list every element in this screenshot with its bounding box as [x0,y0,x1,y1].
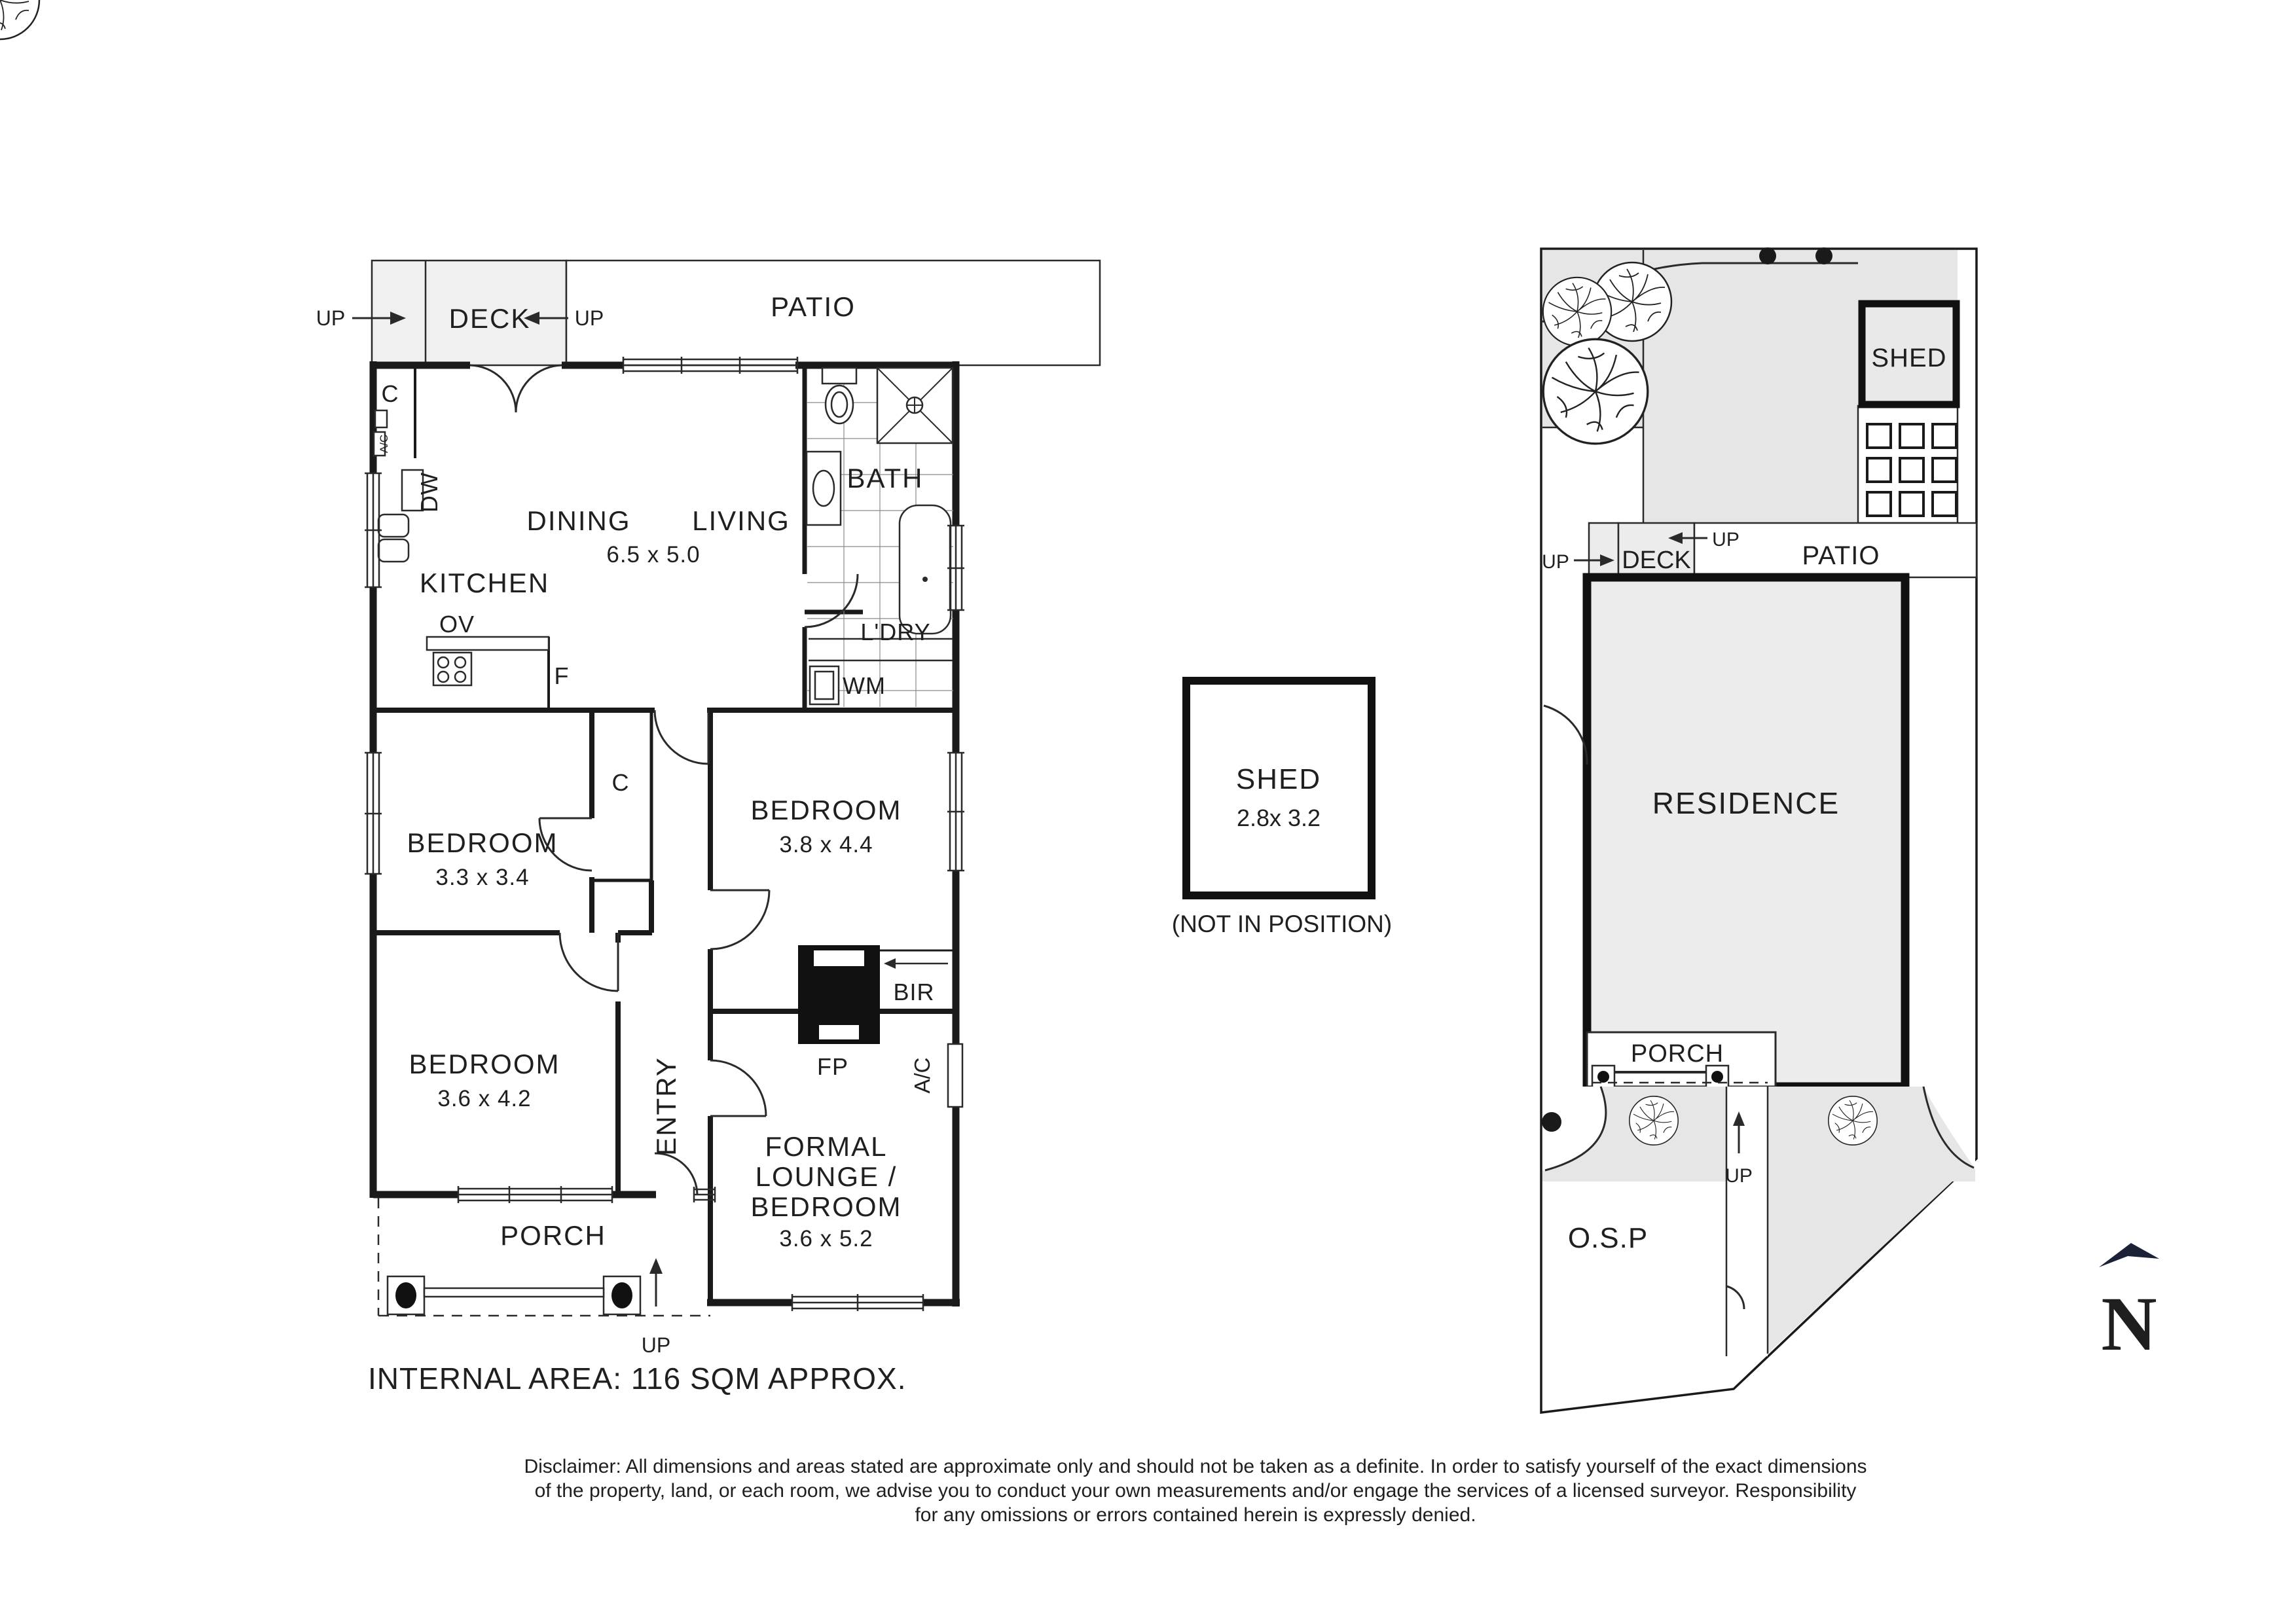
bedroom1-label: BEDROOM [407,827,558,858]
bath-label: BATH [847,463,924,494]
closet-label: C [612,769,630,796]
bush-icon [1759,247,1776,264]
shed-dims: 2.8x 3.2 [1237,804,1321,831]
bedroom3-dims: 3.6 x 4.2 [437,1086,531,1111]
site-porch-label: PORCH [1631,1040,1724,1068]
disclaimer: Disclaimer: All dimensions and areas sta… [524,1456,1867,1526]
bedroom1-dims: 3.3 x 3.4 [435,865,529,890]
bir-arrow [884,958,948,969]
lounge-label-2: LOUNGE / [756,1161,898,1192]
fridge-label: F [555,662,570,689]
site-deck-label: DECK [1622,547,1691,574]
shower [877,368,953,443]
deck-label: DECK [449,303,531,334]
porch-label: PORCH [500,1220,606,1251]
shed-label: SHED [1236,763,1321,795]
bir-label: BIR [893,979,934,1005]
site-up-label-left: UP [1542,551,1569,573]
toilet [822,368,856,424]
disclaimer-line-3: for any omissions or errors contained he… [915,1504,1476,1526]
kitchen-cupboard [375,410,387,427]
bedroom2-dims: 3.8 x 4.4 [779,832,873,857]
porch [378,1198,710,1316]
dining-label: DINING [527,505,631,536]
site-up-label-deck: UP [1712,529,1740,550]
kitchen-sink [378,514,409,562]
wm-label: WM [843,672,886,699]
shed-note: (NOT IN POSITION) [1172,910,1392,937]
kitchen-label: KITCHEN [420,568,549,598]
floor-plan-page: UP DECK UP PATIO C A/C DW DINING LIVING … [0,0,2296,1622]
north-compass: N [2099,1243,2159,1367]
site-up-label-path: UP [1725,1165,1753,1187]
bedroom3-label: BEDROOM [409,1049,560,1079]
shed-detail: SHED 2.8x 3.2 (NOT IN POSITION) [1172,681,1392,937]
site-deck-steps [1589,523,1618,577]
lounge-dims: 3.6 x 5.2 [779,1226,873,1252]
fireplace [798,945,880,1044]
residence-label: RESIDENCE [1652,786,1840,820]
living-dims: 6.5 x 5.0 [606,542,700,568]
site-porch: PORCH [1587,1032,1776,1088]
entry-label: ENTRY [651,1056,682,1156]
ac-label-lounge: A/C [910,1057,934,1093]
internal-area-label: INTERNAL AREA: 116 SQM APPROX. [368,1361,907,1396]
bush-icon [1542,1112,1561,1132]
residence [1587,577,1905,1087]
ac-unit-lounge [948,1044,962,1107]
up-label-deck-left: UP [316,306,345,330]
laundry-label: L'DRY [860,619,930,645]
pavers [1867,424,1956,516]
bush-icon [1815,247,1832,264]
ac-label-kitchen: A/C [378,435,390,453]
osp-label: O.S.P [1568,1222,1648,1254]
plan-drawing: UP DECK UP PATIO C A/C DW DINING LIVING … [0,0,2296,1622]
floorplan-left: UP DECK UP PATIO C A/C DW DINING LIVING … [316,261,1100,1396]
north-arrow-icon [2099,1243,2159,1267]
patio-label: PATIO [771,291,856,322]
bedroom2-label: BEDROOM [750,795,902,825]
vanity [807,452,841,525]
bathtub [900,505,951,634]
site-patio-label: PATIO [1802,541,1880,570]
living-label: LIVING [692,505,790,536]
lounge-label-3: BEDROOM [750,1191,902,1222]
siteplan: SHED UP DECK UP PATIO RESIDENCE [0,0,1977,1413]
front-path [1726,1087,1768,1356]
washing-machine [810,666,839,704]
up-label-porch: UP [642,1333,670,1357]
fireplace-label: FP [817,1053,848,1080]
up-label-deck-right: UP [575,306,604,330]
cupboard-label-kitchen: C [382,380,399,407]
disclaimer-line-2: of the property, land, or each room, we … [535,1480,1857,1502]
site-shed-label: SHED [1871,344,1946,372]
up-arrow-porch [649,1258,663,1307]
lounge-label-1: FORMAL [765,1131,887,1162]
dishwasher-label: DW [416,472,443,513]
oven-label: OV [439,611,475,638]
oven-bench [427,637,549,685]
disclaimer-line-1: Disclaimer: All dimensions and areas sta… [524,1456,1867,1477]
north-letter: N [2101,1281,2157,1367]
